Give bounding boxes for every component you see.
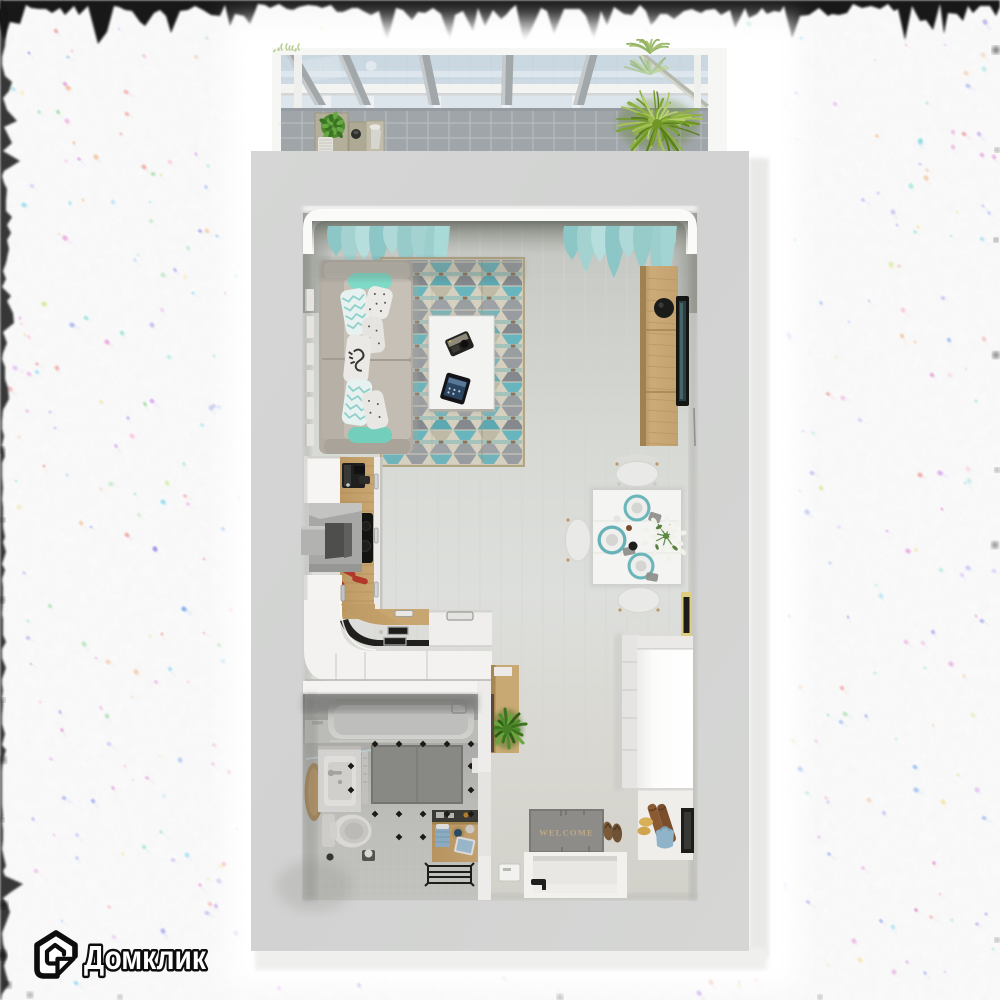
svg-text:WELCOME: WELCOME	[539, 828, 594, 838]
svg-text:Домклик: Домклик	[84, 939, 206, 976]
